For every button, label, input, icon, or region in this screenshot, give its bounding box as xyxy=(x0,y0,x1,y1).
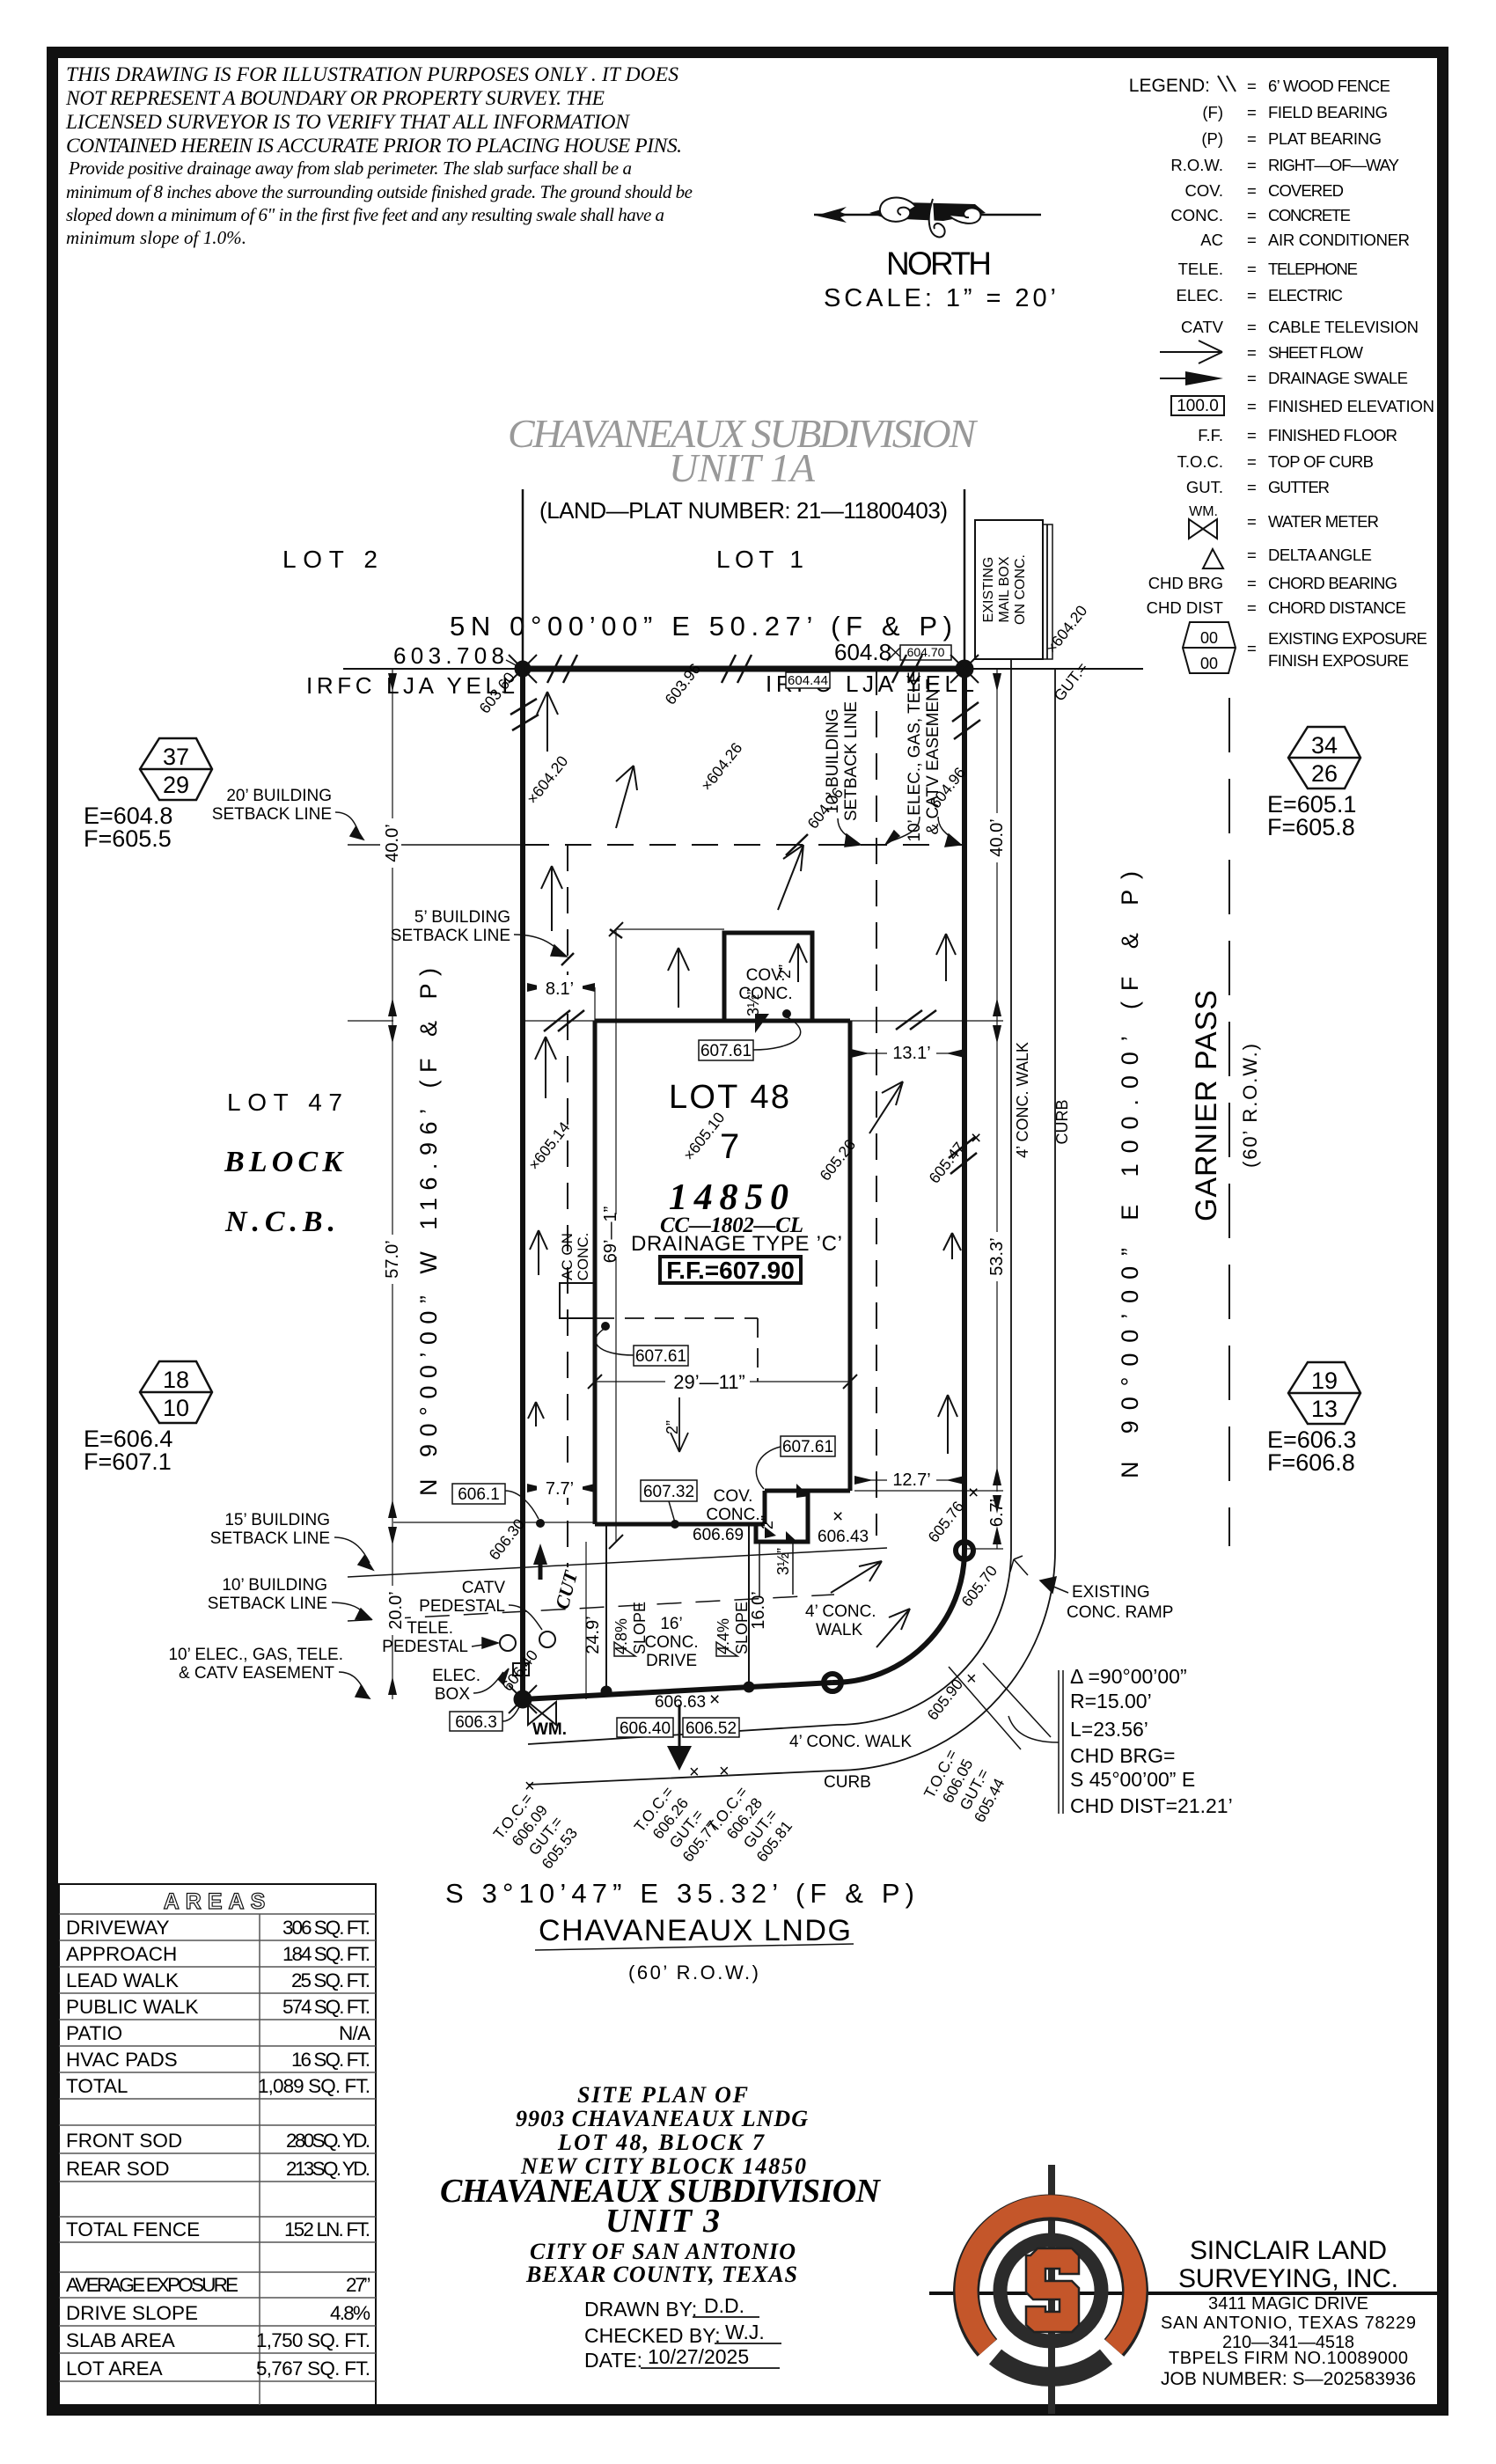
svg-text:CONC.: CONC. xyxy=(644,1633,698,1652)
svg-text:LEGEND:: LEGEND: xyxy=(1129,76,1210,96)
svg-text:WM.: WM. xyxy=(1189,504,1218,519)
svg-text:16’: 16’ xyxy=(660,1615,682,1633)
svg-text:FINISHED ELEVATION: FINISHED ELEVATION xyxy=(1268,397,1434,415)
svg-text:607.32: 607.32 xyxy=(643,1483,694,1501)
svg-text:SLOPE: SLOPE xyxy=(733,1602,751,1654)
svg-text:DRAINAGE TYPE ’C’: DRAINAGE TYPE ’C’ xyxy=(631,1232,842,1256)
svg-text:AREAS: AREAS xyxy=(164,1889,272,1914)
svg-text:DATE:: DATE: xyxy=(584,2349,642,2372)
svg-text:CHORD BEARING: CHORD BEARING xyxy=(1268,574,1397,592)
svg-text:57.0’: 57.0’ xyxy=(383,1240,402,1278)
svg-text:F=605.5: F=605.5 xyxy=(84,825,172,852)
svg-text:19: 19 xyxy=(1311,1368,1338,1394)
svg-text:(60’ R.O.W.): (60’ R.O.W.) xyxy=(1239,1044,1261,1168)
svg-text:(LAND—PLAT NUMBER: 21—1180040: (LAND—PLAT NUMBER: 21—11800403) xyxy=(539,497,948,524)
svg-text:12.7’: 12.7’ xyxy=(892,1470,930,1490)
svg-text:(F): (F) xyxy=(1202,103,1223,121)
svg-text:SLAB AREA: SLAB AREA xyxy=(66,2329,175,2351)
svg-text:CONCRETE: CONCRETE xyxy=(1268,206,1351,224)
svg-text:=: = xyxy=(1247,231,1257,249)
svg-text:ELECTRIC: ELECTRIC xyxy=(1268,286,1343,304)
svg-text:25 SQ. FT.: 25 SQ. FT. xyxy=(291,1969,370,1991)
svg-text:=: = xyxy=(1247,286,1257,304)
svg-text:CURB: CURB xyxy=(824,1773,871,1792)
svg-text:=: = xyxy=(1247,318,1257,336)
svg-text:9903 CHAVANEAUX LNDG: 9903 CHAVANEAUX LNDG xyxy=(516,2106,808,2131)
svg-text:=: = xyxy=(1247,103,1257,121)
svg-text:CONC.: CONC. xyxy=(575,1233,591,1281)
svg-text:CONC.: CONC. xyxy=(1170,206,1223,224)
svg-text:574 SQ. FT.: 574 SQ. FT. xyxy=(282,1996,370,2018)
svg-text:CHD DIST: CHD DIST xyxy=(1147,598,1223,617)
svg-text:DRIVEWAY: DRIVEWAY xyxy=(66,1917,170,1939)
svg-text:PLAT BEARING: PLAT BEARING xyxy=(1268,129,1382,148)
svg-text:& CATV EASEMENT: & CATV EASEMENT xyxy=(179,1664,334,1683)
svg-text:3½”: 3½” xyxy=(774,1548,792,1575)
svg-text:4.4%: 4.4% xyxy=(715,1618,732,1654)
svg-text:N.C.B.: N.C.B. xyxy=(224,1206,335,1238)
svg-text:37: 37 xyxy=(163,744,189,770)
svg-text:SETBACK LINE: SETBACK LINE xyxy=(210,1529,330,1548)
svg-text:4’ CONC.: 4’ CONC. xyxy=(805,1602,876,1621)
svg-text:1,089 SQ. FT.: 1,089 SQ. FT. xyxy=(258,2075,370,2097)
svg-text:TBPELS FIRM NO.10089000: TBPELS FIRM NO.10089000 xyxy=(1169,2349,1408,2368)
svg-text:=: = xyxy=(1247,369,1257,387)
svg-text:EXISTING EXPOSURE: EXISTING EXPOSURE xyxy=(1268,629,1427,648)
svg-text:26: 26 xyxy=(1311,760,1338,787)
svg-text:606.1: 606.1 xyxy=(458,1485,500,1504)
svg-text:10/27/2025: 10/27/2025 xyxy=(648,2345,749,2368)
svg-text:SHEET FLOW: SHEET FLOW xyxy=(1268,343,1364,362)
svg-text:×: × xyxy=(832,1507,843,1527)
svg-text:20’ BUILDING: 20’ BUILDING xyxy=(226,787,332,805)
svg-text:GUTTER: GUTTER xyxy=(1268,478,1330,496)
svg-text:DRIVE SLOPE: DRIVE SLOPE xyxy=(66,2302,198,2324)
svg-text:=: = xyxy=(1247,546,1257,564)
svg-text:R.O.W.: R.O.W. xyxy=(1170,156,1223,174)
svg-text:minimum slope of 1.0%.: minimum slope of 1.0%. xyxy=(66,227,246,248)
svg-text:Provide positive drainage away: Provide positive drainage away from slab… xyxy=(68,158,632,179)
svg-text:ELEC.: ELEC. xyxy=(1177,286,1223,304)
svg-text:JOB NUMBER: S—202583936: JOB NUMBER: S—202583936 xyxy=(1161,2369,1416,2389)
svg-text:5,767 SQ. FT.: 5,767 SQ. FT. xyxy=(256,2358,370,2380)
svg-text:306 SQ. FT.: 306 SQ. FT. xyxy=(282,1917,370,1939)
svg-text:4.8%: 4.8% xyxy=(612,1618,630,1654)
svg-text:=: = xyxy=(1247,260,1257,278)
svg-text:=: = xyxy=(1247,426,1257,444)
svg-text:AVERAGE EXPOSURE: AVERAGE EXPOSURE xyxy=(66,2274,238,2296)
svg-text:COV.: COV. xyxy=(1184,181,1223,200)
svg-text:FIELD BEARING: FIELD BEARING xyxy=(1268,103,1388,121)
svg-text:7: 7 xyxy=(720,1127,739,1166)
svg-text:SITE PLAN OF: SITE PLAN OF xyxy=(577,2082,748,2108)
svg-text:TELEPHONE: TELEPHONE xyxy=(1268,260,1358,278)
svg-text:SETBACK LINE: SETBACK LINE xyxy=(208,1595,327,1613)
svg-text:607.61: 607.61 xyxy=(635,1347,686,1366)
svg-text:1,750 SQ. FT.: 1,750 SQ. FT. xyxy=(256,2329,370,2351)
svg-text:606.43: 606.43 xyxy=(818,1528,869,1546)
svg-text:00: 00 xyxy=(1200,655,1218,672)
svg-text:7.7’: 7.7’ xyxy=(546,1479,574,1499)
svg-text:PUBLIC WALK: PUBLIC WALK xyxy=(66,1996,198,2018)
svg-text:CATV: CATV xyxy=(462,1579,506,1597)
svg-text:10: 10 xyxy=(163,1395,189,1421)
svg-text:F=607.1: F=607.1 xyxy=(84,1448,172,1475)
svg-text:UNIT 3: UNIT 3 xyxy=(605,2203,720,2240)
svg-text:4’ CONC. WALK: 4’ CONC. WALK xyxy=(1014,1042,1031,1158)
svg-text:SLOPE: SLOPE xyxy=(631,1602,649,1654)
svg-text:CHD BRG=: CHD BRG= xyxy=(1070,1744,1176,1767)
svg-text:(P): (P) xyxy=(1201,129,1223,148)
svg-text:TOP OF CURB: TOP OF CURB xyxy=(1268,452,1374,471)
svg-text:WATER METER: WATER METER xyxy=(1268,512,1379,531)
svg-text:BOX: BOX xyxy=(435,1685,470,1704)
svg-text:ELEC.: ELEC. xyxy=(432,1667,480,1685)
svg-text:APPROACH: APPROACH xyxy=(66,1943,177,1965)
svg-text:W.J.: W.J. xyxy=(725,2321,765,2343)
svg-text:24.9’: 24.9’ xyxy=(583,1616,603,1654)
svg-text:DELTA ANGLE: DELTA ANGLE xyxy=(1268,546,1372,564)
svg-text:604.8: 604.8 xyxy=(834,639,891,665)
svg-text:6’ WOOD FENCE: 6’ WOOD FENCE xyxy=(1268,77,1390,95)
svg-text:SETBACK LINE: SETBACK LINE xyxy=(391,927,510,945)
svg-text:606.52: 606.52 xyxy=(686,1720,737,1738)
svg-text:14850: 14850 xyxy=(669,1177,788,1218)
svg-text:S 45°00’00” E: S 45°00’00” E xyxy=(1070,1768,1195,1791)
svg-text:=: = xyxy=(1247,77,1257,95)
svg-text:13.1’: 13.1’ xyxy=(892,1044,930,1063)
svg-text:TOTAL FENCE: TOTAL FENCE xyxy=(66,2218,200,2240)
svg-text:sloped down a minimum of 6" in: sloped down a minimum of 6" in the first… xyxy=(66,204,664,225)
svg-text:FINISHED FLOOR: FINISHED FLOOR xyxy=(1268,426,1397,444)
svg-text:=: = xyxy=(1247,206,1257,224)
svg-text:F=606.8: F=606.8 xyxy=(1267,1449,1355,1476)
svg-text:PEDESTAL: PEDESTAL xyxy=(419,1597,505,1616)
svg-text:×: × xyxy=(719,1762,730,1781)
svg-text:HVAC PADS: HVAC PADS xyxy=(66,2049,178,2071)
svg-text:29: 29 xyxy=(163,772,189,798)
svg-text:F=605.8: F=605.8 xyxy=(1267,814,1355,840)
svg-text:LOT 48: LOT 48 xyxy=(669,1079,789,1116)
svg-text:SINCLAIR LAND: SINCLAIR LAND xyxy=(1190,2236,1387,2265)
svg-text:SAN ANTONIO, TEXAS 78229: SAN ANTONIO, TEXAS 78229 xyxy=(1161,2314,1416,2333)
svg-text:=: = xyxy=(1247,156,1257,174)
svg-text:Δ =90°00’00”: Δ =90°00’00” xyxy=(1070,1665,1187,1688)
svg-text:LOT AREA: LOT AREA xyxy=(66,2358,163,2380)
svg-text:RIGHT—OF—WAY: RIGHT—OF—WAY xyxy=(1268,156,1399,174)
svg-text:F.F.=607.90: F.F.=607.90 xyxy=(666,1257,795,1284)
svg-text:10’ ELEC., GAS, TELE: 10’ ELEC., GAS, TELE xyxy=(906,671,924,841)
svg-text:AC ON: AC ON xyxy=(559,1233,576,1280)
svg-text:29’—11”: 29’—11” xyxy=(673,1371,745,1393)
svg-text:×: × xyxy=(968,1483,979,1503)
svg-text:REAR SOD: REAR SOD xyxy=(66,2158,170,2180)
svg-text:CHORD DISTANCE: CHORD DISTANCE xyxy=(1268,598,1406,617)
svg-text:LICENSED SURVEYOR IS TO VERIFY: LICENSED SURVEYOR IS TO VERIFY THAT ALL … xyxy=(65,111,630,134)
svg-text:N/A: N/A xyxy=(339,2022,370,2044)
svg-text:18: 18 xyxy=(163,1367,189,1393)
svg-text:100.0: 100.0 xyxy=(1177,397,1219,415)
svg-text:DRAINAGE SWALE: DRAINAGE SWALE xyxy=(1268,369,1408,387)
svg-text:607.61: 607.61 xyxy=(700,1042,752,1060)
svg-text:3½”: 3½” xyxy=(744,989,762,1016)
svg-text:27”: 27” xyxy=(346,2274,370,2296)
svg-text:SETBACK LINE: SETBACK LINE xyxy=(212,805,332,824)
svg-text:606.69: 606.69 xyxy=(693,1526,744,1544)
svg-text:×: × xyxy=(524,1777,535,1796)
svg-text:=: = xyxy=(1247,181,1257,200)
svg-text:4.8%: 4.8% xyxy=(330,2302,370,2324)
svg-text:=: = xyxy=(1247,598,1257,617)
svg-text:604.70: 604.70 xyxy=(907,645,945,659)
svg-text:SURVEYING, INC.: SURVEYING, INC. xyxy=(1178,2264,1398,2293)
svg-text:213SQ. YD.: 213SQ. YD. xyxy=(286,2158,370,2180)
svg-text:F.F.: F.F. xyxy=(1198,426,1223,444)
svg-text:WALK: WALK xyxy=(816,1621,862,1639)
svg-text:THIS DRAWING IS FOR ILLUSTRATI: THIS DRAWING IS FOR ILLUSTRATION PURPOSE… xyxy=(66,63,678,86)
svg-text:×: × xyxy=(966,1669,977,1689)
svg-text:=: = xyxy=(1247,478,1257,496)
svg-text:MAIL BOX: MAIL BOX xyxy=(997,556,1012,622)
svg-text:AIR CONDITIONER: AIR CONDITIONER xyxy=(1268,231,1410,249)
svg-text:TELE.: TELE. xyxy=(1178,260,1223,278)
svg-text:×: × xyxy=(971,1128,981,1148)
svg-text:CHD BRG: CHD BRG xyxy=(1148,574,1223,592)
svg-text:×: × xyxy=(709,1690,720,1710)
svg-text:5’ BUILDING: 5’ BUILDING xyxy=(414,908,510,927)
svg-text:L=23.56’: L=23.56’ xyxy=(1070,1718,1148,1741)
svg-text:LEAD WALK: LEAD WALK xyxy=(66,1969,179,1991)
svg-text:DRAWN BY:: DRAWN BY: xyxy=(584,2298,697,2321)
svg-text:=: = xyxy=(1247,512,1257,531)
svg-text:=: = xyxy=(1247,452,1257,471)
svg-text:EXISTING: EXISTING xyxy=(981,557,996,623)
svg-text:20.0’: 20.0’ xyxy=(386,1591,406,1629)
svg-text:CHAVANEAUX LNDG: CHAVANEAUX LNDG xyxy=(539,1914,851,1947)
svg-text:604.44: 604.44 xyxy=(788,673,828,688)
svg-text:4’ CONC. WALK: 4’ CONC. WALK xyxy=(789,1733,912,1751)
svg-text:CONC.: CONC. xyxy=(706,1506,759,1524)
svg-text:R=15.00’: R=15.00’ xyxy=(1070,1690,1152,1712)
svg-text:CONC. RAMP: CONC. RAMP xyxy=(1067,1603,1173,1622)
svg-text:69’—1”: 69’—1” xyxy=(601,1206,620,1263)
svg-text:CATV: CATV xyxy=(1181,318,1224,336)
svg-text:606.3: 606.3 xyxy=(455,1713,497,1732)
svg-text:CURB: CURB xyxy=(1053,1099,1071,1144)
svg-text:=: = xyxy=(1247,574,1257,592)
svg-text:CITY OF SAN ANTONIO: CITY OF SAN ANTONIO xyxy=(530,2239,796,2264)
svg-text:607.61: 607.61 xyxy=(782,1438,833,1456)
svg-text:=: = xyxy=(1247,343,1257,362)
svg-text:=: = xyxy=(1247,397,1257,415)
svg-text:53.3’: 53.3’ xyxy=(987,1237,1007,1275)
svg-text:NORTH: NORTH xyxy=(886,246,992,282)
svg-text:40.0’: 40.0’ xyxy=(987,818,1007,856)
svg-text:2”: 2” xyxy=(759,1515,776,1529)
svg-text:LOT 1: LOT 1 xyxy=(716,546,803,573)
svg-text:CABLE TELEVISION: CABLE TELEVISION xyxy=(1268,318,1419,336)
svg-text:=: = xyxy=(1247,639,1257,657)
svg-text:152 LN. FT.: 152 LN. FT. xyxy=(284,2218,370,2240)
svg-text:10’ BUILDING: 10’ BUILDING xyxy=(222,1576,327,1595)
svg-text:15’ BUILDING: 15’ BUILDING xyxy=(224,1511,330,1529)
svg-text:2”: 2” xyxy=(776,964,794,979)
svg-text:=: = xyxy=(1247,129,1257,148)
svg-text:×: × xyxy=(689,1763,700,1782)
svg-text:13: 13 xyxy=(1311,1396,1338,1422)
svg-text:CHD DIST=21.21’: CHD DIST=21.21’ xyxy=(1070,1794,1233,1817)
svg-text:ON CONC.: ON CONC. xyxy=(1013,554,1028,625)
svg-text:TELE.: TELE. xyxy=(407,1619,453,1638)
svg-text:GUT.: GUT. xyxy=(1186,478,1223,496)
svg-text:16 SQ. FT.: 16 SQ. FT. xyxy=(291,2049,370,2071)
svg-text:T.O.C.: T.O.C. xyxy=(1177,452,1223,471)
svg-text:280SQ. YD.: 280SQ. YD. xyxy=(286,2130,370,2152)
svg-text:WM.: WM. xyxy=(532,1720,567,1739)
svg-text:TOTAL: TOTAL xyxy=(66,2075,128,2097)
svg-text:184 SQ. FT.: 184 SQ. FT. xyxy=(282,1943,370,1965)
svg-text:PEDESTAL: PEDESTAL xyxy=(382,1638,468,1656)
svg-text:606.40: 606.40 xyxy=(620,1720,671,1738)
svg-text:FRONT SOD: FRONT SOD xyxy=(66,2130,182,2152)
svg-text:BEXAR COUNTY, TEXAS: BEXAR COUNTY, TEXAS xyxy=(525,2262,797,2287)
svg-text:34: 34 xyxy=(1311,732,1338,759)
svg-text:3411 MAGIC DRIVE: 3411 MAGIC DRIVE xyxy=(1208,2294,1368,2314)
svg-text:COV.: COV. xyxy=(714,1487,753,1506)
svg-text:SCALE: 1” = 20’: SCALE: 1” = 20’ xyxy=(824,284,1056,312)
svg-text:10’ ELEC., GAS, TELE.: 10’ ELEC., GAS, TELE. xyxy=(168,1646,343,1664)
svg-text:SETBACK LINE: SETBACK LINE xyxy=(842,701,861,821)
svg-text:CONTAINED HEREIN IS ACCURATE P: CONTAINED HEREIN IS ACCURATE PRIOR TO PL… xyxy=(66,135,682,158)
svg-text:GARNIER PASS: GARNIER PASS xyxy=(1190,990,1223,1221)
svg-text:EXISTING: EXISTING xyxy=(1072,1583,1150,1602)
svg-text:00: 00 xyxy=(1200,629,1218,647)
svg-text:DRIVE: DRIVE xyxy=(646,1652,697,1670)
svg-text:AC: AC xyxy=(1200,231,1223,249)
svg-text:UNIT 1A: UNIT 1A xyxy=(669,445,816,490)
svg-text:CHECKED BY:: CHECKED BY: xyxy=(584,2324,721,2347)
svg-text:D.D.: D.D. xyxy=(704,2294,744,2317)
svg-text:2”: 2” xyxy=(664,1420,681,1434)
svg-text:minimum of 8 inches above the: minimum of 8 inches above the surroundin… xyxy=(66,181,693,202)
svg-text:NOT REPRESENT A BOUNDARY OR PR: NOT REPRESENT A BOUNDARY OR PROPERTY SUR… xyxy=(65,87,605,110)
svg-text:BLOCK: BLOCK xyxy=(224,1146,344,1178)
svg-text:8.1’: 8.1’ xyxy=(546,979,574,999)
svg-text:FINISH EXPOSURE: FINISH EXPOSURE xyxy=(1268,651,1409,670)
svg-text:COVERED: COVERED xyxy=(1268,181,1344,200)
svg-text:40.0’: 40.0’ xyxy=(383,824,402,862)
svg-text:PATIO: PATIO xyxy=(66,2022,122,2044)
svg-text:16.0’: 16.0’ xyxy=(749,1591,768,1629)
svg-text:LOT 48, BLOCK 7: LOT 48, BLOCK 7 xyxy=(557,2130,765,2155)
